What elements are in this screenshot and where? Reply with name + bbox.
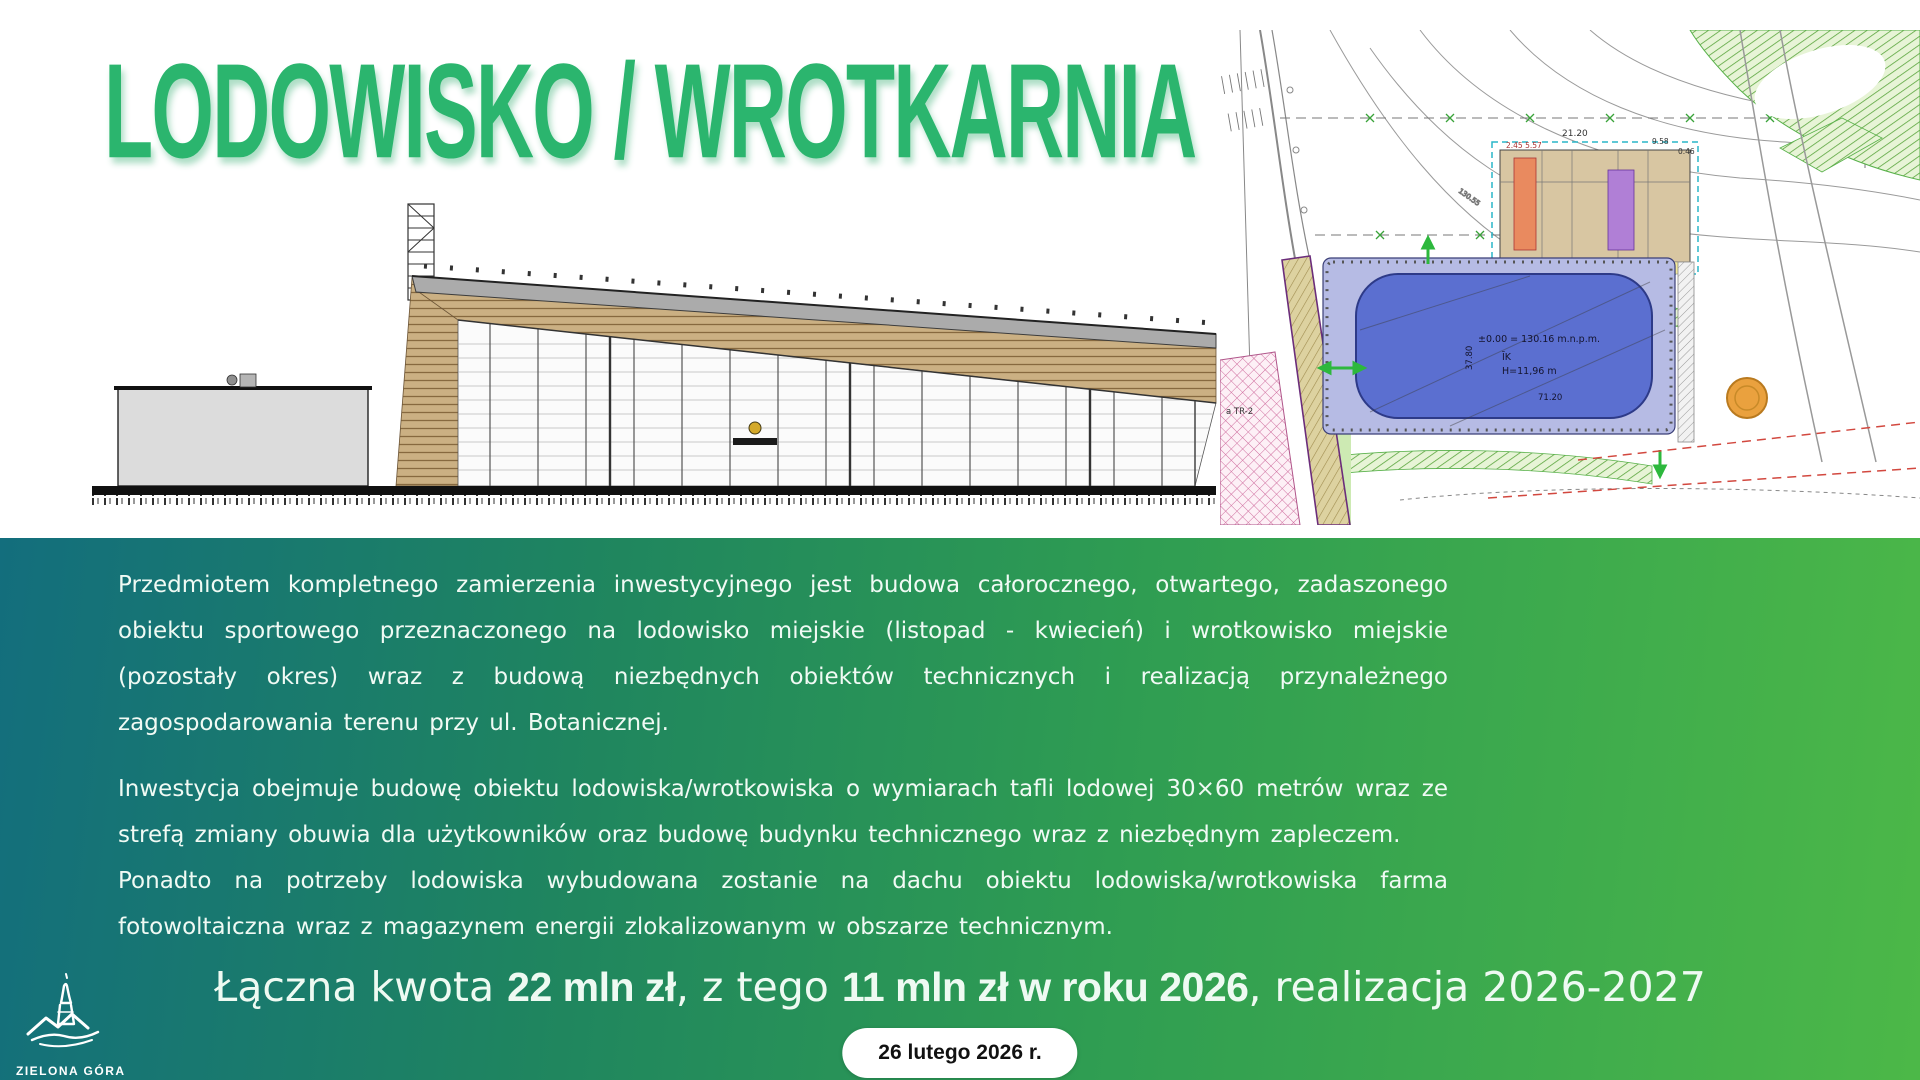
summary-suffix: , realizacja 2026-2027 [1248,963,1705,1011]
description-text: Przedmiotem kompletnego zamierzenia inwe… [118,562,1448,950]
zielona-gora-tower-icon [20,972,112,1058]
city-logo: ZIELONA GÓRA [16,972,116,1078]
svg-text:0.46: 0.46 [1678,147,1695,156]
svg-text:±0.00 = 130.16 m.n.p.m.: ±0.00 = 130.16 m.n.p.m. [1478,334,1600,345]
svg-text:9.58: 9.58 [1652,137,1669,146]
summary-2026-amount: 11 mln zł w roku 2026 [842,964,1249,1010]
tr2-label: a TR-2 [1226,407,1253,417]
tree-symbol [1727,378,1767,418]
svg-text:ĪK: ĪK [1502,352,1512,363]
svg-text:2.45 5.57: 2.45 5.57 [1506,141,1542,150]
technical-building: 21.20 2.45 5.57 9.58 0.46 [1492,129,1698,274]
svg-text:37.80: 37.80 [1465,346,1475,370]
summary-prefix: Łączna kwota [214,963,507,1011]
summary-middle: , z tego [676,963,842,1011]
annex-building [114,374,372,486]
site-plan-drawing: 130.55 130.73 [1220,30,1920,525]
paragraph-3: Ponadto na potrzeby lodowiska wybudowana… [118,858,1448,950]
paragraph-2: Inwestycja obejmuje budowę obiektu lodow… [118,766,1448,858]
svg-text:H=11,96 m: H=11,96 m [1502,366,1557,377]
date-badge: 26 lutego 2026 r. [842,1028,1077,1078]
budget-summary: Łączna kwota 22 mln zł, z tego 11 mln zł… [0,963,1920,1011]
svg-text:21.20: 21.20 [1562,129,1588,139]
page-title: LODOWISKO / WROTKARNIA [104,44,1195,179]
paragraph-1: Przedmiotem kompletnego zamierzenia inwe… [118,562,1448,746]
svg-text:71.20: 71.20 [1538,393,1562,403]
city-logo-label: ZIELONA GÓRA [16,1064,116,1078]
info-panel: Przedmiotem kompletnego zamierzenia inwe… [0,538,1920,1080]
presentation-slide: LODOWISKO / WROTKARNIA [0,0,1920,1080]
building-elevation-drawing [90,198,1220,510]
summary-total-amount: 22 mln zł [507,964,676,1010]
ground-line [92,486,1216,505]
